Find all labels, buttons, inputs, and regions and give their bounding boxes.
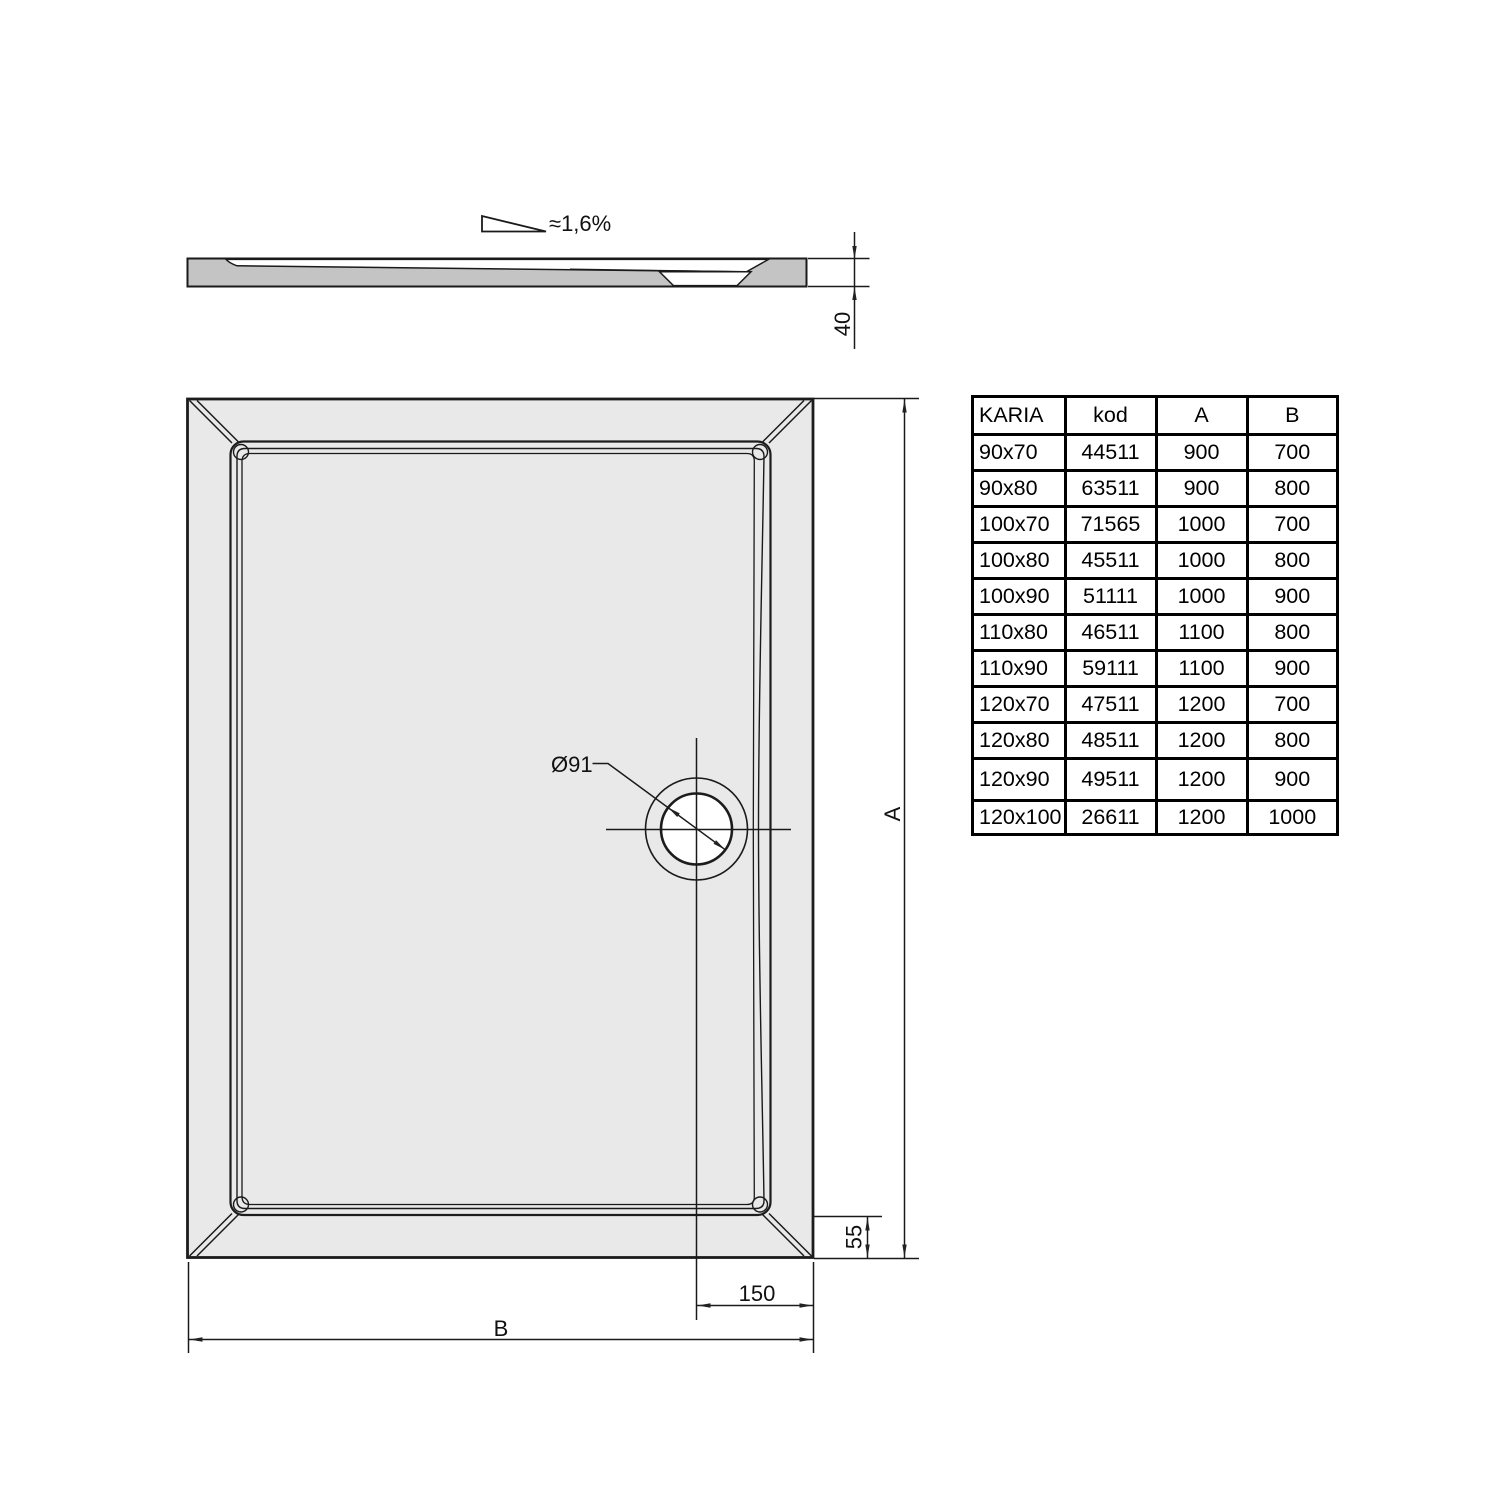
svg-text:≈1,6%: ≈1,6% xyxy=(549,211,611,236)
svg-text:40: 40 xyxy=(830,312,855,336)
svg-text:B: B xyxy=(494,1316,509,1341)
svg-text:A: A xyxy=(880,806,905,821)
svg-text:150: 150 xyxy=(739,1281,776,1306)
svg-text:Ø91: Ø91 xyxy=(551,752,593,777)
svg-text:55: 55 xyxy=(842,1225,867,1249)
